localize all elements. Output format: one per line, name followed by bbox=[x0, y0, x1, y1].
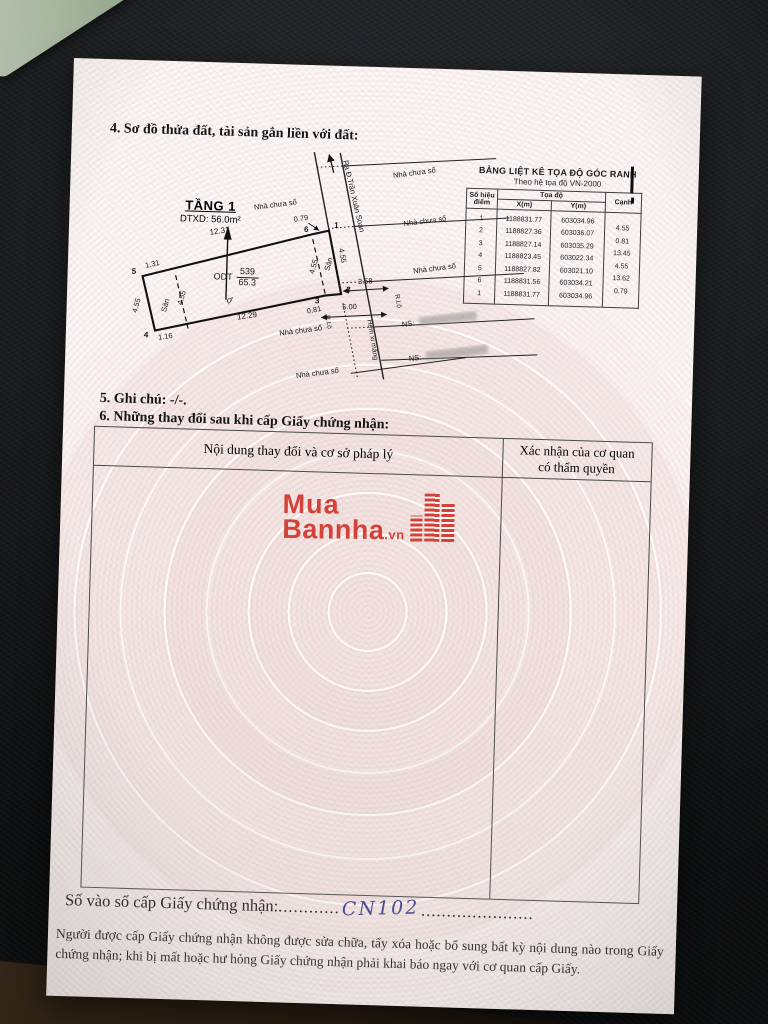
ns-label: NS: bbox=[408, 353, 421, 363]
yard-right-width: 4.55 bbox=[307, 258, 320, 274]
alley-name: Hẻm xi măng bbox=[365, 319, 379, 361]
confirm-header-line1: Xác nhận của cơ quan bbox=[519, 442, 635, 462]
house-label: Nhà chưa số bbox=[413, 261, 458, 275]
point-label: 4 bbox=[144, 330, 149, 339]
dim-frontage: 4.55 bbox=[337, 248, 348, 264]
yard-left-label: Sân bbox=[159, 298, 171, 313]
dim-0-81: 0.81 bbox=[306, 304, 322, 316]
yard-right-label: Sân bbox=[322, 256, 334, 271]
point-label: 1 bbox=[334, 221, 339, 230]
dotted-leader: ...................... bbox=[421, 901, 534, 923]
footer-note: Người được cấp Giấy chứng nhận không đượ… bbox=[55, 924, 664, 983]
lot-line-dotted bbox=[317, 165, 343, 168]
dim-0-79: 0.79 bbox=[293, 213, 309, 224]
logo-tld: .vn bbox=[384, 527, 404, 542]
changes-col-content-header: Nội dung thay đổi và cơ sở pháp lý bbox=[94, 427, 503, 477]
dim-bottom-left: 1.16 bbox=[157, 331, 173, 342]
lot-line-dotted bbox=[328, 226, 354, 230]
dim-bottom: 12.29 bbox=[236, 310, 258, 322]
muabannha-watermark: Mua Bannha.vn bbox=[282, 492, 455, 544]
house-label: Nhà chưa số bbox=[403, 214, 448, 228]
road-right-line bbox=[334, 153, 391, 379]
road-left-line-dotted bbox=[341, 303, 360, 378]
land-use-code: ODT bbox=[213, 272, 232, 283]
parcel-area: 65.3 bbox=[236, 277, 258, 289]
ns-label: NS: bbox=[401, 319, 414, 329]
point-label: 6 bbox=[304, 225, 309, 234]
book-entry-label: Số vào sổ cấp Giấy chứng nhận: bbox=[65, 890, 279, 915]
changes-col-confirm-header: Xác nhận của cơ quan có thẩm quyền bbox=[502, 439, 652, 481]
road-frontage-label: R.Lộ bbox=[393, 294, 402, 309]
dim-5-00: 5.00 bbox=[342, 302, 357, 312]
parcel-diagram: 1 2 3 4 5 6 12.31 12.29 1.31 4.55 1.16 4… bbox=[84, 134, 651, 401]
house-label: Nhà chưa số bbox=[279, 323, 324, 337]
dotted-leader: ............ bbox=[278, 896, 340, 917]
point-label: 5 bbox=[132, 267, 137, 276]
dim-left: 4.55 bbox=[130, 297, 143, 313]
redacted-text bbox=[418, 311, 477, 326]
house-label: Nhà chưa số bbox=[392, 165, 437, 179]
logo-word2: Bannha.vn bbox=[282, 517, 405, 543]
dim-0-79-pointer bbox=[308, 223, 319, 230]
point-label: 2 bbox=[346, 285, 351, 294]
certificate-page: 4. Sơ đồ thửa đất, tài sản gắn liền với … bbox=[46, 58, 702, 1014]
buildings-icon bbox=[410, 493, 455, 544]
handwritten-certificate-number: CN102 bbox=[341, 897, 419, 921]
confirm-header-line2: có thẩm quyền bbox=[538, 459, 615, 478]
section5-title: 5. Ghi chú: -/-. bbox=[100, 391, 187, 410]
parcel-id-label: ODT 539 65.3 bbox=[213, 266, 258, 288]
parcel-number: 539 bbox=[238, 267, 257, 277]
street-arrow bbox=[329, 155, 335, 173]
parcel-letter: ợ bbox=[227, 295, 233, 306]
house-label: Nhà chưa số bbox=[295, 366, 340, 380]
road-frontage-label: R.Lộ bbox=[324, 315, 333, 330]
changes-table-divider bbox=[489, 439, 504, 899]
dim-top-left: 1.31 bbox=[144, 258, 160, 270]
dim-3-58: 3.58 bbox=[358, 276, 373, 286]
house-label: Nhà chưa số bbox=[253, 197, 298, 211]
yard-left-width: 4.55 bbox=[175, 289, 188, 305]
